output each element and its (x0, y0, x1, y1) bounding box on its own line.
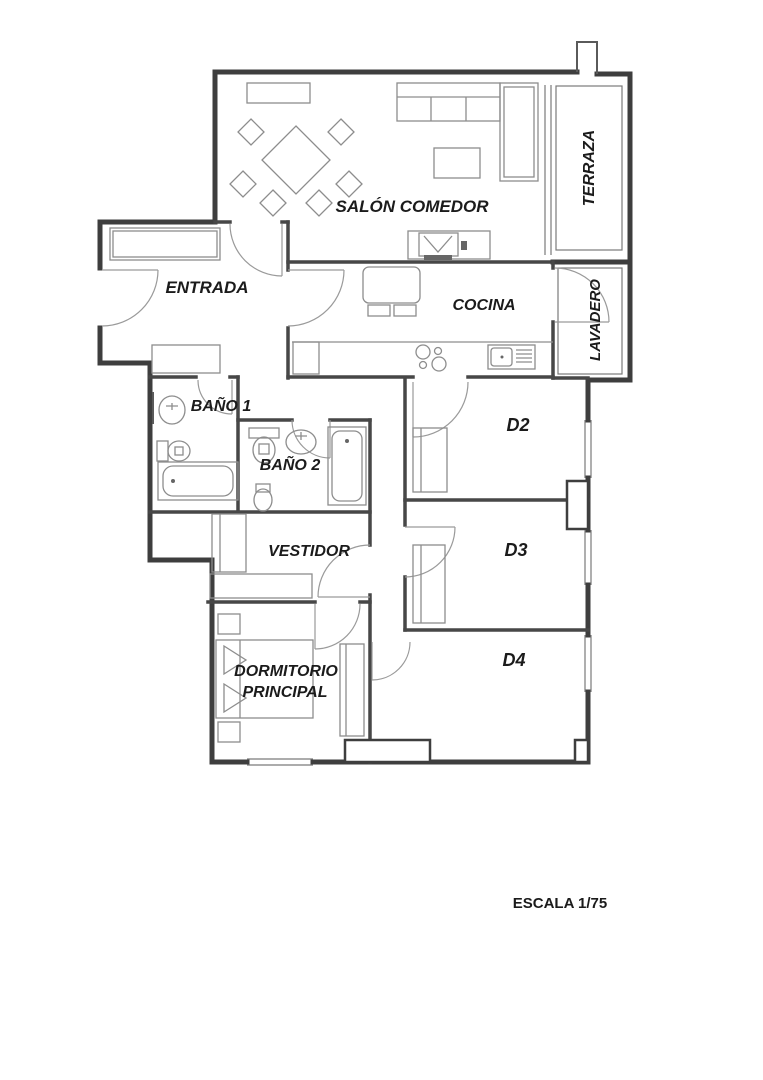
cocina-label: COCINA (452, 297, 515, 314)
wardrobe-dormitorio (340, 644, 364, 736)
chair (260, 190, 286, 216)
stove (416, 345, 446, 371)
d4-label: D4 (502, 650, 525, 670)
dormitorio-door (315, 604, 360, 649)
chimney (577, 42, 597, 74)
hall-cabinet (152, 345, 220, 373)
sideboard (247, 83, 310, 103)
bano2-label: BAÑO 2 (260, 454, 321, 474)
salon-label: SALÓN COMEDOR (336, 197, 490, 216)
bidet (254, 484, 272, 511)
sink-1 (159, 396, 185, 424)
d4-door (372, 642, 410, 680)
bathtub-2 (328, 427, 366, 505)
lavadero-label: LAVADERO (587, 279, 604, 361)
wardrobe-d2 (413, 428, 447, 492)
d2-label: D2 (506, 415, 529, 435)
toilet-1 (157, 441, 190, 461)
salon-furniture (230, 83, 538, 260)
entry-door (102, 270, 158, 326)
entrada-label: ENTRADA (165, 278, 248, 297)
cocina-door (288, 270, 344, 326)
chair (328, 119, 354, 145)
chair (238, 119, 264, 145)
d2-furniture (413, 428, 447, 492)
counter-unit (293, 342, 319, 374)
bano1-label: BAÑO 1 (191, 395, 252, 415)
bathtub-1 (158, 462, 238, 500)
chair (306, 190, 332, 216)
cocina-furniture (292, 267, 553, 374)
stool (394, 305, 416, 316)
wall-pillars (345, 481, 588, 762)
sink-2 (286, 430, 316, 454)
entrada-furniture (110, 228, 220, 373)
sofa (397, 83, 538, 181)
entry-closet (110, 228, 220, 260)
wardrobe-vestidor-bottom (210, 574, 312, 598)
kitchen-table (363, 267, 420, 303)
wardrobe-vestidor-left (212, 514, 246, 572)
scale-label: ESCALA 1/75 (513, 895, 607, 912)
dormitorio-label-line1: DORMITORIO (234, 663, 338, 680)
terraza-label: TERRAZA (581, 130, 598, 206)
stool (368, 305, 390, 316)
coffee-table (434, 148, 480, 178)
d3-furniture (413, 545, 445, 623)
nightstand (218, 722, 240, 742)
floor-plan-page: SALÓN COMEDOR TERRAZA ENTRADA COCINA LAV… (0, 0, 763, 1080)
chair (336, 171, 362, 197)
chair (230, 171, 256, 197)
d3-label: D3 (504, 540, 527, 560)
tv-unit (408, 231, 490, 260)
salon-door (230, 224, 282, 276)
nightstand (218, 614, 240, 634)
wardrobe-d3 (413, 545, 445, 623)
vestidor-label: VESTIDOR (268, 543, 350, 560)
kitchen-sink (488, 345, 535, 369)
bano2-door (292, 420, 330, 458)
floor-plan-svg: SALÓN COMEDOR TERRAZA ENTRADA COCINA LAV… (0, 0, 763, 1080)
room-labels: SALÓN COMEDOR TERRAZA ENTRADA COCINA LAV… (165, 130, 604, 701)
dormitorio-label-line2: PRINCIPAL (242, 684, 327, 701)
